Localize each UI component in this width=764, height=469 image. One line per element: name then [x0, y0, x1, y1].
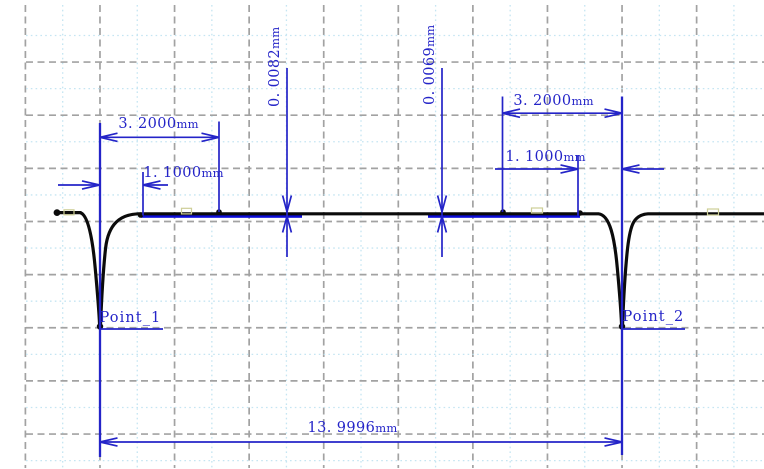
left-offset-label: 1. 1000mm	[143, 165, 223, 181]
profile-start-dot	[54, 209, 61, 216]
left-depth-label: 0. 0082mm	[267, 27, 283, 107]
point1-label: Point_1	[100, 310, 162, 326]
right-depth-label: 0. 0069mm	[422, 25, 438, 105]
total-width-label: 13. 9996mm	[308, 420, 398, 436]
right-width-label: 3. 2000mm	[513, 93, 593, 109]
profile-measurement-canvas: 3. 2000mm 1. 1000mm 0. 0082mm 0. 0069mm …	[0, 0, 764, 469]
left-width-label: 3. 2000mm	[118, 116, 198, 132]
plot-background	[0, 0, 764, 469]
right-offset-label: 1. 1000mm	[505, 149, 585, 165]
measurement-plot-area: 3. 2000mm 1. 1000mm 0. 0082mm 0. 0069mm …	[0, 0, 764, 469]
point2-label: Point_2	[623, 309, 685, 325]
